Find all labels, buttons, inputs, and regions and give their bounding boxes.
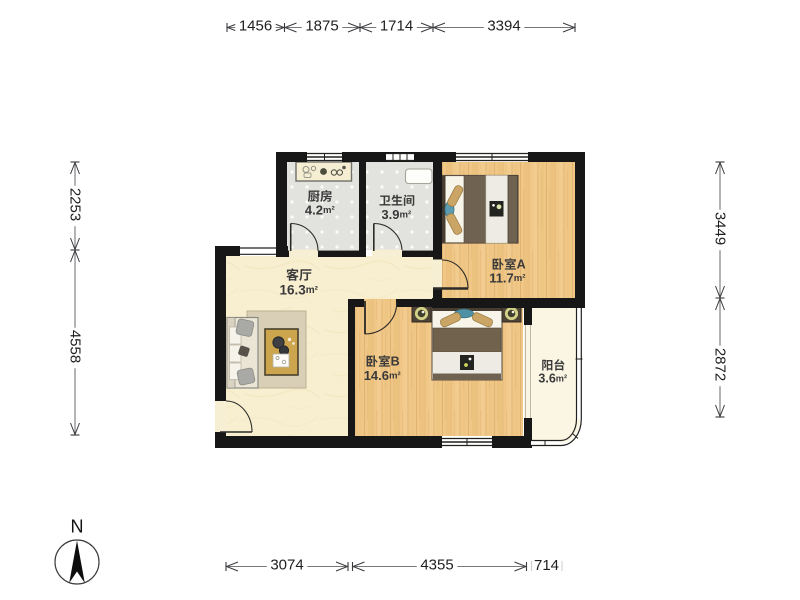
svg-text:4558: 4558 <box>67 330 84 363</box>
svg-text:1875: 1875 <box>305 18 338 35</box>
svg-text:N: N <box>71 517 84 537</box>
svg-text:3449: 3449 <box>712 212 729 245</box>
svg-text:3394: 3394 <box>487 18 520 35</box>
svg-text:714: 714 <box>534 557 559 574</box>
svg-text:3.6m²: 3.6m² <box>538 372 567 386</box>
svg-text:3.9m²: 3.9m² <box>381 207 411 222</box>
svg-text:3074: 3074 <box>270 557 303 574</box>
svg-text:B: B <box>391 355 400 369</box>
svg-text:2253: 2253 <box>67 188 84 221</box>
svg-text:2872: 2872 <box>712 348 729 381</box>
svg-text:4355: 4355 <box>420 557 453 574</box>
svg-text:14.6m²: 14.6m² <box>364 368 401 383</box>
svg-text:A: A <box>517 258 526 272</box>
svg-text:4.2m²: 4.2m² <box>305 203 335 218</box>
svg-text:1714: 1714 <box>380 18 413 35</box>
svg-text:1456: 1456 <box>239 18 272 35</box>
svg-text:11.7m²: 11.7m² <box>489 271 525 286</box>
svg-text:16.3m²: 16.3m² <box>280 283 319 298</box>
